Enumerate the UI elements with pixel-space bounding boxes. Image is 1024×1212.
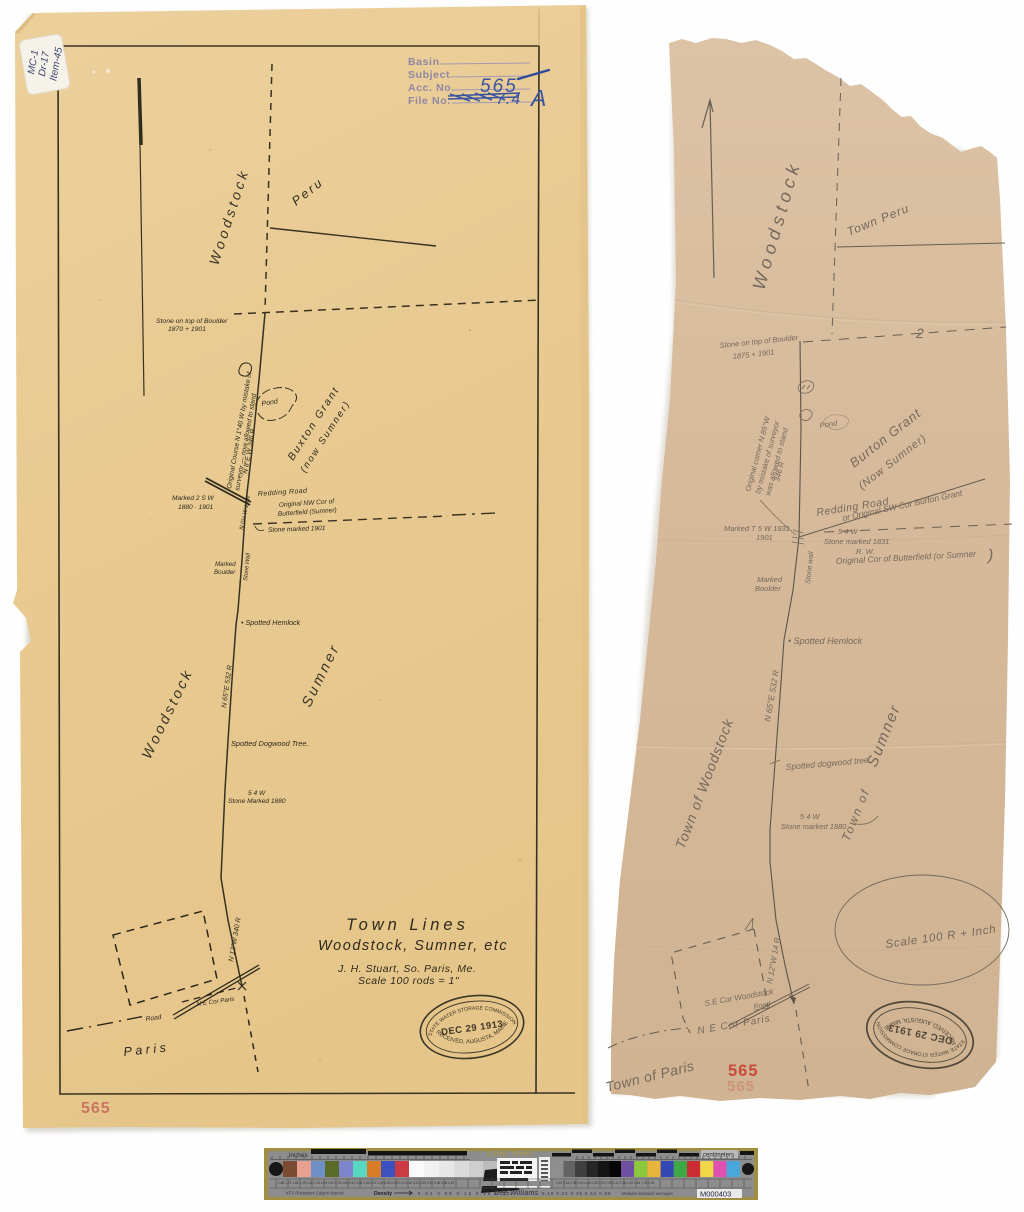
svg-text:Stone Marked 1880: Stone Marked 1880: [228, 798, 286, 805]
svg-text:KFS Illustrators Calgon deposi: KFS Illustrators Calgon deposit: [286, 1191, 345, 1196]
svg-text:5 4 W: 5 4 W: [838, 527, 859, 536]
svg-text:Marked T 5 W 1831: Marked T 5 W 1831: [724, 524, 790, 533]
svg-text:Stone marked 1831: Stone marked 1831: [824, 537, 889, 546]
svg-text:1870 + 1901: 1870 + 1901: [168, 326, 206, 333]
svg-text:centimeters: centimeters: [703, 1153, 734, 1159]
svg-text:Boulder: Boulder: [755, 584, 781, 593]
svg-text:2: 2: [915, 325, 924, 341]
svg-text:Marked: Marked: [757, 575, 783, 584]
svg-text:565: 565: [81, 1100, 111, 1117]
svg-text:Scale 100 rods = 1": Scale 100 rods = 1": [358, 975, 460, 987]
svg-text:M000403: M000403: [700, 1190, 731, 1199]
svg-text:• Spotted Hemlock: • Spotted Hemlock: [788, 636, 863, 646]
svg-text:1901: 1901: [756, 533, 773, 542]
svg-text:Modular standard averages: Modular standard averages: [622, 1191, 673, 1196]
svg-text:Marked 2 S W: Marked 2 S W: [172, 495, 215, 502]
svg-text:): ): [986, 547, 993, 564]
svg-text:Spotted Dogwood Tree.: Spotted Dogwood Tree.: [231, 739, 309, 748]
svg-text:Color Tones: Color Tones: [487, 1151, 533, 1158]
svg-text:Basin: Basin: [408, 56, 440, 68]
svg-text:Dee Williams: Dee Williams: [494, 1190, 539, 1197]
svg-text:1.85 1.72 1.58 1.45 1.32 1.18: 1.85 1.72 1.58 1.45 1.32 1.18 1.05 0.92 …: [278, 1181, 455, 1185]
svg-text:J. H. Stuart, So. Paris, Me.: J. H. Stuart, So. Paris, Me.: [337, 963, 476, 975]
svg-text:7.4: 7.4: [496, 91, 521, 108]
svg-text:Acc. No.: Acc. No.: [408, 82, 455, 94]
svg-text:Subject: Subject: [408, 69, 450, 81]
svg-text:Marked: Marked: [215, 561, 236, 568]
svg-text:Boulder: Boulder: [214, 569, 236, 576]
svg-text:• Spotted Hemlock: • Spotted Hemlock: [241, 618, 301, 627]
svg-text:1880 · 1901: 1880 · 1901: [178, 504, 214, 511]
svg-text:Density: Density: [374, 1191, 392, 1197]
svg-text:5 4 W: 5 4 W: [248, 790, 266, 797]
svg-text:Stone on top of Boulder: Stone on top of Boulder: [156, 318, 228, 325]
svg-text:Woodstock, Sumner, etc: Woodstock, Sumner, etc: [318, 938, 508, 954]
svg-text:565: 565: [727, 1078, 755, 1095]
svg-text:inches: inches: [289, 1152, 309, 1159]
svg-text:A: A: [529, 85, 546, 111]
svg-text:5 4 W: 5 4 W: [800, 812, 821, 821]
svg-text:Town Lines: Town Lines: [346, 916, 469, 934]
svg-text:File No.: File No.: [408, 95, 451, 107]
svg-text:0.10 0.24 0.38 0.52 0.66 0.80: 0.10 0.24 0.38 0.52 0.66 0.80 0.94 1.08 …: [556, 1181, 655, 1185]
svg-text:Stone marked 1880: Stone marked 1880: [781, 822, 847, 831]
svg-text:0.10 0.24 0.38 0.52 0.66: 0.10 0.24 0.38 0.52 0.66: [542, 1191, 611, 1196]
